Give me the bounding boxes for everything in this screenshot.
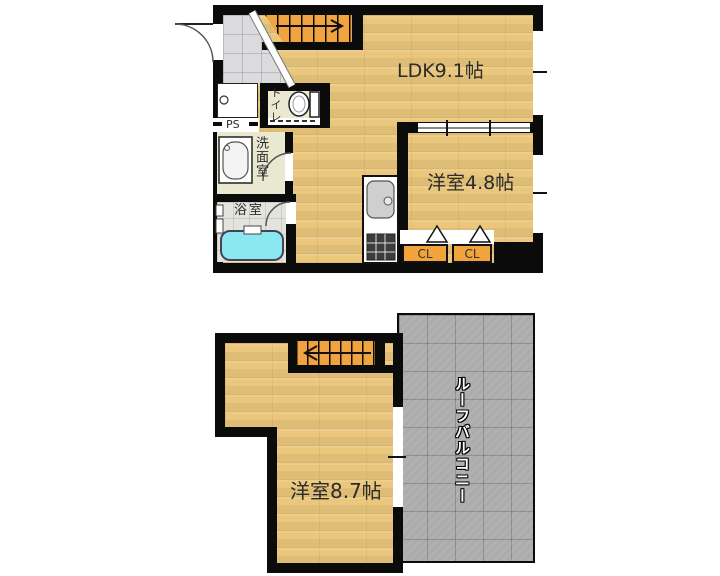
stairs-lower-floor [296,341,375,365]
sliding-door-opening [418,123,530,132]
window [533,155,543,233]
entrance-door-opening [213,24,223,60]
washroom-door-opening [285,153,293,181]
bathtub-icon [220,230,284,261]
lower-stairs-wall-right [375,340,385,365]
room-label-bedroom-48: 洋室4.8帖 [427,174,514,193]
stairs-wall-bottom [262,42,363,50]
bathroom-door-opening [286,202,296,224]
lower-wall-bottom [267,563,403,573]
window [393,407,403,507]
room-label-bedroom-87: 洋室8.7帖 [290,481,382,501]
room-label-pipe-space: PS [226,119,240,130]
closet-1: CL [402,244,448,263]
lower-stairs-wall-bottom [288,365,393,373]
closet-door-strip [400,230,494,244]
room-label-bathroom: 浴室 [234,204,264,217]
floorplan: CL CL [0,0,720,576]
lower-wall-left-lower [267,427,277,573]
room-label-washroom: 洗面室 [254,136,267,190]
room-label-ldk: LDK9.1帖 [397,62,484,81]
closet-2: CL [452,244,492,263]
closet-1-label: CL [417,247,432,261]
room-label-toilet: トイレ [270,87,281,127]
ps-wall-tick-left [213,122,222,126]
entrance-door-swing-icon [175,24,213,62]
closet-2-label: CL [464,247,479,261]
lower-floor-wood-floor [225,343,393,563]
lower-wall-left-upper [215,333,225,437]
shoe-cabinet [217,83,258,118]
corner-wall-mass [494,242,543,273]
room-label-roof-balcony: ルーフバルコニー [454,376,469,511]
window [533,31,543,115]
ps-wall-tick-right [249,122,258,126]
bathroom-wall-top [213,194,296,202]
